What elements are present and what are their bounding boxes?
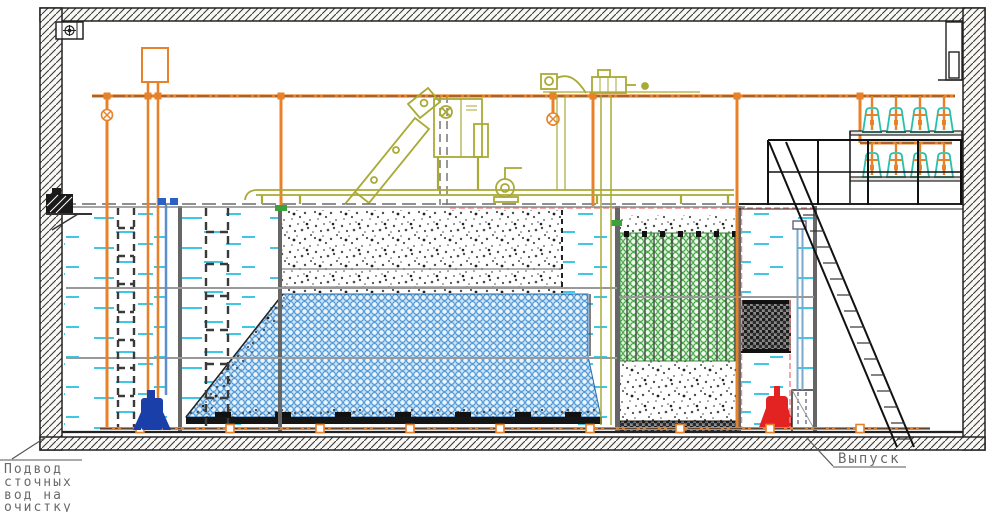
wall-left: [40, 8, 62, 450]
inlet-label-line-4: очистку: [4, 500, 73, 512]
platform-railing: [768, 140, 963, 205]
blower-unit: [886, 153, 906, 177]
screen-unit: [345, 88, 440, 204]
blower-unit: [910, 108, 930, 132]
blower-unit: [934, 153, 954, 177]
aeration-grid-strip: [186, 417, 602, 424]
wall-right: [963, 8, 985, 450]
blower-unit: [862, 108, 882, 132]
stair-steps: [803, 215, 911, 439]
water-tank-1: [64, 209, 178, 431]
blower-rack: [850, 108, 962, 204]
service-table: [245, 190, 734, 204]
outlet-label: Выпуск: [838, 451, 901, 467]
drawing-svg: Подвод сточных вод на очистку Выпуск: [0, 0, 1000, 512]
biofilter-tank: [620, 215, 738, 432]
floor-slab: [40, 437, 985, 450]
wall-top: [40, 8, 985, 21]
motor-unit: [592, 70, 648, 93]
drive-unit-small: [541, 74, 586, 93]
dark-media-block: [741, 302, 791, 352]
vent-duct: [938, 22, 962, 80]
blower-unit: [886, 108, 906, 132]
control-cabinet: [434, 99, 488, 190]
blower-unit: [934, 108, 954, 132]
pressure-vessel: [142, 48, 168, 82]
outlet-chamber: [792, 390, 816, 432]
treatment-plant-section-drawing: Подвод сточных вод на очистку Выпуск: [0, 0, 1000, 512]
blower-unit: [862, 153, 882, 177]
screw-pump: [494, 168, 522, 202]
ventilation-fan-unit: [56, 22, 83, 39]
floating-media-stipple: [280, 210, 562, 293]
blower-unit: [910, 153, 930, 177]
